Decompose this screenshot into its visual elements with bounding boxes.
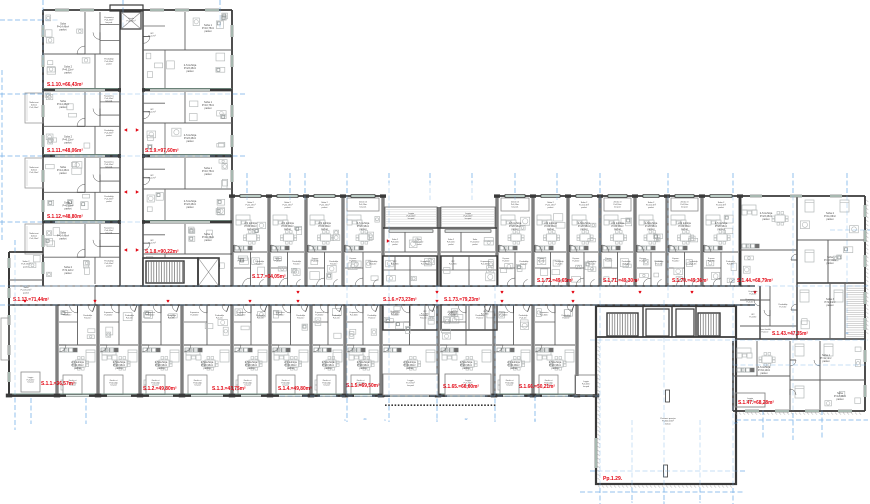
svg-text:ker.pod: ker.pod: [111, 385, 117, 387]
svg-text:P=6,4m²: P=6,4m²: [655, 262, 663, 265]
svg-text:ker.pod: ker.pod: [324, 385, 330, 387]
svg-text:P=4,66m²: P=4,66m²: [421, 262, 430, 265]
svg-text:ker.pod: ker.pod: [407, 385, 414, 387]
svg-text:parket: parket: [548, 206, 554, 209]
svg-text:S.1.71.=49,30m²: S.1.71.=49,30m²: [603, 278, 639, 284]
svg-text:P=4,6m²: P=4,6m²: [502, 259, 510, 262]
svg-text:parket: parket: [23, 291, 29, 294]
svg-text:P=6,4m²: P=6,4m²: [588, 262, 596, 265]
svg-text:P=1,8m²: P=1,8m²: [749, 315, 757, 318]
svg-text:parket: parket: [106, 265, 112, 268]
svg-text:ker.pod.: ker.pod.: [360, 205, 367, 208]
svg-text:parket: parket: [718, 228, 725, 231]
svg-text:ker.pod.: ker.pod.: [105, 101, 113, 103]
svg-text:parket: parket: [321, 228, 328, 231]
svg-text:P=6,1m²: P=6,1m²: [84, 316, 92, 319]
svg-text:P=6,1m²: P=6,1m²: [761, 330, 769, 333]
svg-text:Pp.1.29.: Pp.1.29.: [603, 476, 623, 482]
svg-text:P=4,6m²: P=4,6m²: [708, 259, 716, 262]
svg-text:ker.pod.: ker.pod.: [105, 232, 113, 234]
svg-text:parket: parket: [837, 398, 844, 401]
svg-text:P=4,60m²: P=4,60m²: [190, 313, 199, 316]
svg-text:parket: parket: [823, 360, 830, 363]
svg-text:S.1.43.=47,35m²: S.1.43.=47,35m²: [772, 331, 808, 337]
svg-text:P=6,4m²: P=6,4m²: [330, 262, 338, 265]
svg-text:P=6,1m²: P=6,1m²: [257, 316, 265, 319]
svg-text:S.1.11.=48,06m²: S.1.11.=48,06m²: [47, 148, 83, 154]
svg-text:parket: parket: [60, 106, 67, 109]
svg-text:ker.pod: ker.pod: [28, 382, 34, 384]
svg-text:P=1,96m²: P=1,96m²: [391, 262, 400, 265]
svg-text:parket: parket: [248, 206, 254, 209]
svg-text:P=11,13m²: P=11,13m²: [716, 204, 726, 207]
svg-text:P=4,76m²: P=4,76m²: [126, 20, 135, 23]
svg-text:parket: parket: [60, 238, 67, 241]
svg-text:parket: parket: [23, 265, 29, 268]
svg-text:parket: parket: [761, 372, 768, 375]
svg-text:parket: parket: [106, 134, 112, 137]
svg-text:P=4,66m²: P=4,66m²: [481, 262, 490, 265]
svg-text:S.1.1.=36,57m²: S.1.1.=36,57m²: [41, 381, 75, 387]
svg-text:parket: parket: [360, 228, 367, 231]
svg-text:S.1.2.=49,80m²: S.1.2.=49,80m²: [143, 386, 177, 392]
svg-text:parket: parket: [187, 70, 194, 73]
svg-text:parket: parket: [65, 72, 72, 75]
svg-text:P=4,6m²: P=4,6m²: [349, 259, 357, 262]
svg-text:parket: parket: [512, 228, 519, 231]
svg-text:parket: parket: [106, 63, 112, 66]
svg-text:P=4,60m²: P=4,60m²: [391, 313, 400, 316]
svg-text:S.1.6.=73,23m²: S.1.6.=73,23m²: [383, 297, 417, 303]
svg-text:parket: parket: [247, 228, 254, 231]
svg-text:parket: parket: [204, 367, 211, 370]
svg-text:parket: parket: [205, 30, 212, 33]
svg-text:P=6,1m²: P=6,1m²: [297, 316, 305, 319]
svg-text:parket: parket: [284, 228, 291, 231]
svg-text:P=11,13m²: P=11,13m²: [245, 204, 255, 207]
svg-text:P=6,1m²: P=6,1m²: [126, 316, 134, 319]
svg-text:P=6,10m²: P=6,10m²: [30, 237, 39, 240]
svg-text:P=4,6m²: P=4,6m²: [672, 259, 680, 262]
svg-text:parket: parket: [392, 243, 398, 246]
svg-text:parket: parket: [65, 208, 72, 211]
svg-text:ker.pod: ker.pod: [195, 385, 201, 387]
svg-text:P=6,1m²: P=6,1m²: [216, 316, 224, 319]
svg-text:P=4,4m²: P=4,4m²: [746, 300, 754, 303]
svg-text:P=6,1m²: P=6,1m²: [420, 316, 428, 319]
svg-text:parket: parket: [648, 206, 654, 209]
svg-text:parket: parket: [648, 228, 655, 231]
svg-text:S.1.72.=49,65m²: S.1.72.=49,65m²: [537, 278, 573, 284]
svg-text:ker.pod: ker.pod: [408, 218, 415, 220]
svg-text:ker.pod.: ker.pod.: [614, 205, 621, 208]
svg-text:P=4,60m²: P=4,60m²: [237, 313, 246, 316]
svg-text:parket: parket: [406, 367, 413, 370]
svg-text:parket: parket: [614, 228, 621, 231]
svg-text:S.1.65.=66,60m²: S.1.65.=66,60m²: [443, 384, 479, 390]
svg-text:parket: parket: [718, 206, 724, 209]
svg-text:S.1.70.=49,36m²: S.1.70.=49,36m²: [672, 278, 708, 284]
svg-text:P=4,6m²: P=4,6m²: [238, 259, 246, 262]
svg-text:P=11,13m²: P=11,13m²: [282, 204, 292, 207]
svg-text:P=6,1m²: P=6,1m²: [333, 316, 341, 319]
svg-text:parket: parket: [106, 200, 112, 203]
svg-text:parket: parket: [581, 206, 587, 209]
svg-text:S.1.44.=68,79m²: S.1.44.=68,79m²: [737, 278, 773, 284]
svg-text:parket: parket: [60, 28, 67, 31]
svg-text:P=6,4m²: P=6,4m²: [556, 262, 564, 265]
svg-text:S.1.13.=71,44m²: S.1.13.=71,44m²: [13, 297, 49, 303]
svg-text:P=4,60m²: P=4,60m²: [276, 313, 285, 316]
svg-text:P=6,1m²: P=6,1m²: [562, 316, 570, 319]
svg-text:S.1.12.=48,80m²: S.1.12.=48,80m²: [47, 214, 83, 220]
svg-text:ker.pod: ker.pod: [583, 385, 589, 388]
svg-text:parket: parket: [463, 367, 470, 370]
svg-text:parket: parket: [116, 367, 123, 370]
svg-text:S.1.73.=79,23m²: S.1.73.=79,23m²: [444, 297, 480, 303]
svg-text:P=6,1m²: P=6,1m²: [476, 316, 484, 319]
svg-text:parket: parket: [322, 206, 328, 209]
svg-text:S.1.47.=68,28m²: S.1.47.=68,28m²: [738, 400, 774, 406]
svg-text:parket: parket: [65, 142, 72, 145]
svg-text:S.1.3.=43,75m²: S.1.3.=43,75m²: [212, 386, 246, 392]
svg-text:ker.pod.: ker.pod.: [681, 205, 688, 208]
svg-text:Prolazni prostor: Prolazni prostor: [660, 417, 676, 420]
svg-text:P=7,3m²: P=7,3m²: [779, 305, 787, 308]
svg-text:P=6,1m²: P=6,1m²: [168, 316, 176, 319]
svg-text:parket: parket: [205, 107, 212, 110]
svg-text:parket: parket: [287, 367, 294, 370]
svg-text:P=4,60m²: P=4,60m²: [63, 313, 72, 316]
svg-text:P=4,60m²: P=4,60m²: [146, 313, 155, 316]
svg-text:parket: parket: [547, 228, 554, 231]
svg-text:P=6,10m²: P=6,10m²: [30, 106, 39, 109]
svg-text:S.1.7.=64,05m²: S.1.7.=64,05m²: [252, 274, 286, 280]
svg-text:ker.pod: ker.pod: [465, 218, 472, 220]
svg-text:P=11,13m²: P=11,13m²: [545, 204, 555, 207]
svg-text:parket: parket: [552, 367, 559, 370]
svg-text:ker.pod.: ker.pod.: [105, 167, 113, 169]
svg-text:P=4,4m²: P=4,4m²: [749, 292, 757, 295]
svg-text:parket: parket: [827, 218, 834, 221]
svg-text:parket: parket: [448, 243, 454, 246]
svg-text:parket: parket: [827, 304, 834, 307]
svg-text:S.1.5.=69,50m²: S.1.5.=69,50m²: [346, 383, 380, 389]
svg-text:P=13,12m²: P=13,12m²: [21, 289, 32, 292]
svg-text:parket: parket: [325, 367, 332, 370]
svg-text:parket: parket: [187, 206, 194, 209]
svg-text:ker.pod.: ker.pod.: [512, 205, 519, 208]
svg-text:ker.pod.: ker.pod.: [105, 22, 113, 24]
svg-text:ker.pod: ker.pod: [507, 385, 513, 387]
svg-text:P=4,60m²: P=4,60m²: [448, 313, 457, 316]
svg-text:S.1.8.=90,22m²: S.1.8.=90,22m²: [145, 249, 179, 255]
svg-text:P=4,60m²: P=4,60m²: [104, 313, 113, 316]
svg-text:P=4,60m²: P=4,60m²: [315, 313, 324, 316]
svg-text:P=6,4m²: P=6,4m²: [369, 262, 377, 265]
svg-text:parket: parket: [510, 367, 517, 370]
svg-text:P=4,6m²: P=4,6m²: [605, 259, 613, 262]
svg-text:S.1.66.=50,21m²: S.1.66.=50,21m²: [519, 384, 555, 390]
svg-text:parket: parket: [285, 206, 291, 209]
svg-text:parket: parket: [65, 272, 72, 275]
svg-text:beton: beton: [665, 422, 671, 425]
svg-text:P=4,6m²: P=4,6m²: [538, 259, 546, 262]
svg-text:P=6,1m²: P=6,1m²: [520, 316, 528, 319]
svg-text:parket: parket: [248, 367, 255, 370]
svg-text:parket: parket: [827, 262, 834, 265]
svg-text:parket: parket: [60, 172, 67, 175]
svg-text:P=4,60m²: P=4,60m²: [500, 313, 509, 316]
svg-text:P=11,13m²: P=11,13m²: [319, 204, 329, 207]
svg-text:P=11,13m²: P=11,13m²: [646, 204, 656, 207]
svg-text:P=4,6m²: P=4,6m²: [572, 259, 580, 262]
svg-text:P=4,6m²: P=4,6m²: [639, 259, 647, 262]
svg-text:parket: parket: [205, 239, 212, 242]
svg-text:parket: parket: [74, 367, 81, 370]
svg-text:S.1.4.=49,80m²: S.1.4.=49,80m²: [278, 386, 312, 392]
svg-text:P=6,4m²: P=6,4m²: [293, 262, 301, 265]
svg-text:P=11,13m²: P=11,13m²: [579, 204, 589, 207]
svg-text:P=4,60m²: P=4,60m²: [540, 313, 549, 316]
svg-text:P=6,4m²: P=6,4m²: [623, 262, 631, 265]
svg-text:parket: parket: [681, 228, 688, 231]
svg-text:S.1.9.=97,60m²: S.1.9.=97,60m²: [145, 148, 179, 154]
svg-text:P=1,96m²: P=1,96m²: [449, 262, 458, 265]
svg-text:parket: parket: [187, 140, 194, 143]
svg-text:P=6,4m²: P=6,4m²: [256, 262, 264, 265]
svg-text:parket: parket: [360, 367, 367, 370]
svg-text:P=6,4m²: P=6,4m²: [520, 262, 528, 265]
svg-text:P=4,6m²: P=4,6m²: [275, 259, 283, 262]
svg-text:parket: parket: [205, 173, 212, 176]
svg-text:P=6,4m²: P=6,4m²: [690, 262, 698, 265]
svg-text:parket: parket: [472, 243, 478, 246]
svg-text:Soba: Soba: [23, 287, 29, 289]
svg-text:parket: parket: [763, 218, 770, 221]
svg-text:S.1.10.=66,43m²: S.1.10.=66,43m²: [47, 82, 83, 88]
svg-text:parket: parket: [581, 228, 588, 231]
svg-text:P=4,6m²: P=4,6m²: [312, 259, 320, 262]
svg-text:P=6,1m²: P=6,1m²: [368, 316, 376, 319]
svg-text:P=6,10m²: P=6,10m²: [30, 171, 39, 174]
svg-text:parket: parket: [158, 367, 165, 370]
svg-text:P=4,60m²: P=4,60m²: [350, 313, 359, 316]
svg-text:10°: 10°: [734, 421, 738, 425]
